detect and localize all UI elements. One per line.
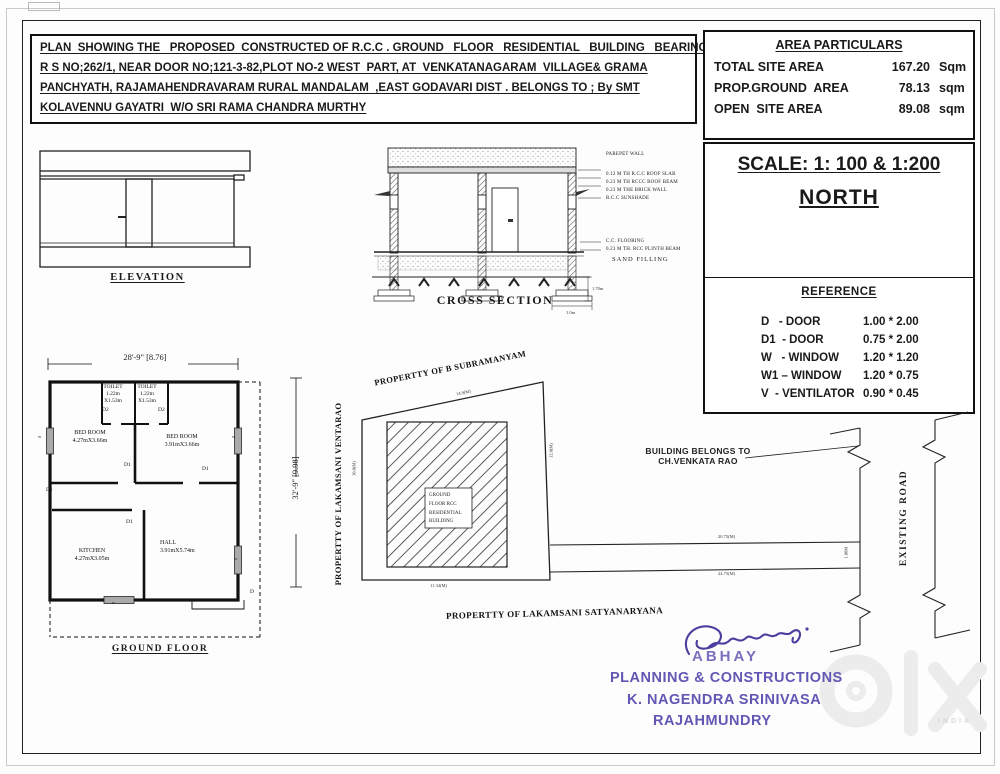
area-row-value: 78.13	[865, 81, 930, 95]
door-mark-d1: D1	[126, 519, 133, 525]
area-particulars-box: AREA PARTICULARS TOTAL SITE AREA 167.20 …	[703, 30, 975, 140]
property-label-left: PROPERTTY OF LAKAMSANI VENTARAO	[333, 389, 343, 599]
door-mark-d1: D1	[46, 487, 53, 493]
north-text: NORTH	[705, 186, 973, 210]
callout-sunshade: R.C.C SUNSHADE	[606, 196, 649, 201]
area-row-unit: Sqm	[939, 60, 966, 74]
reference-size: 1.20 * 0.75	[863, 370, 919, 382]
room-name: KITCHEN	[79, 548, 105, 554]
area-row-label: PROP.GROUND AREA	[714, 81, 849, 95]
window-mark-w: w	[232, 434, 235, 439]
room-name: BED ROOM	[74, 430, 106, 436]
scale-reference-box: SCALE: 1: 100 & 1:200 NORTH REFERENCE D …	[703, 142, 975, 414]
title-block: PLAN SHOWING THE PROPOSED CONSTRUCTED OF…	[30, 34, 697, 124]
building-box-line: BUILDING	[429, 519, 453, 524]
callout-roof-beam: 0.23 M TH RCCC ROOF BEAM	[606, 180, 678, 185]
section-footing-dim: 1.0m	[566, 310, 575, 315]
scale-text: SCALE: 1: 100 & 1:200	[705, 154, 973, 176]
room-name: TOILET	[103, 384, 122, 390]
belongs-line-1: BUILDING BELONGS TO	[645, 446, 750, 456]
reference-name: D - DOOR	[761, 316, 820, 328]
room-hall: HALL 3.91mX5.74m	[160, 540, 220, 555]
site-dim-left: 10.0(M)	[352, 454, 357, 484]
reference-name: W - WINDOW	[761, 352, 839, 364]
callout-brick-wall: 0.23 M THE BRICK WALL	[606, 188, 667, 193]
title-line-1: PLAN SHOWING THE PROPOSED CONSTRUCTED OF…	[40, 42, 707, 54]
lane-dim: 1.00M	[843, 547, 848, 559]
reference-size: 1.20 * 1.20	[863, 352, 919, 364]
belongs-line-2: CH.VENKATA RAO	[658, 456, 738, 466]
elevation-drawing	[36, 145, 258, 271]
reference-size: 0.90 * 0.45	[863, 388, 919, 400]
blueprint-sheet: PLAN SHOWING THE PROPOSED CONSTRUCTED OF…	[0, 0, 1000, 774]
elevation-label: ELEVATION	[100, 272, 195, 283]
stamp-line-city: RAJAHMUNDRY	[653, 713, 772, 729]
callout-roof-slab: 0.12 M TH R.C.C ROOF SLAB	[606, 172, 676, 177]
door-mark-d1: D1	[124, 462, 131, 468]
reference-name: V - VENTILATOR	[761, 388, 855, 400]
room-dim: 4.27mX3.05m	[75, 556, 110, 562]
window-mark-w: w	[112, 600, 115, 605]
window-mark-w: w	[234, 556, 237, 561]
stamp-line-name: K. NAGENDRA SRINIVASA	[627, 692, 821, 708]
building-box-line: GROUND	[429, 493, 450, 498]
room-toilet-left: TOILET 1.22m X1.53m	[98, 384, 128, 405]
callout-flooring: C.C. FLOORING	[606, 239, 644, 244]
area-row-label: TOTAL SITE AREA	[714, 60, 824, 74]
cross-section-drawing	[372, 140, 604, 318]
room-name: HALL	[160, 540, 176, 546]
reference-name: D1 - DOOR	[761, 334, 824, 346]
plan-height-dim: 32'-9" [9.98]	[290, 433, 300, 523]
area-row-unit: sqm	[939, 102, 965, 116]
site-dim-bottom: 11.34(M)	[430, 583, 447, 588]
existing-road-label: EXISTING ROAD	[899, 462, 909, 574]
callout-sand-filling: SAND FILLING	[612, 256, 669, 263]
cross-section-label: CROSS SECTION	[420, 293, 570, 308]
room-bed-left: BED ROOM 4.27mX3.66m	[58, 430, 122, 445]
reference-name: W1 – WINDOW	[761, 370, 842, 382]
floor-plan-drawing	[40, 352, 330, 652]
room-kitchen: KITCHEN 4.27mX3.05m	[62, 548, 122, 563]
title-line-3: PANCHYATH, RAJAMAHENDRAVARAM RURAL MANDA…	[40, 82, 640, 94]
room-name: BED ROOM	[166, 434, 198, 440]
title-line-4: KOLAVENNU GAYATRI W/O SRI RAMA CHANDRA M…	[40, 102, 366, 114]
room-dim: 3.91mX3.66m	[165, 442, 200, 448]
building-belongs-note: BUILDING BELONGS TO CH.VENKATA RAO	[628, 446, 768, 466]
room-name: TOILET	[137, 384, 156, 390]
reference-size: 1.00 * 2.00	[863, 316, 919, 328]
building-box-line: RESIDENTIAL	[429, 511, 462, 516]
passage-dim-bottom: 24.75(M)	[718, 571, 735, 576]
corner-tab	[28, 2, 60, 11]
room-dim: 4.27mX3.66m	[73, 438, 108, 444]
area-row-value: 89.08	[865, 102, 930, 116]
callout-plinth-beam: 0.23 M TH. RCC PLINTH BEAM	[606, 247, 681, 252]
area-row-label: OPEN SITE AREA	[714, 102, 823, 116]
area-particulars-title: AREA PARTICULARS	[705, 38, 973, 52]
door-mark-d2: D2	[102, 407, 109, 413]
door-mark-d1: D1	[202, 466, 209, 472]
olx-watermark	[808, 645, 998, 745]
section-depth-dim: 1.70m	[592, 286, 603, 291]
door-mark-d2: D2	[158, 407, 165, 413]
ground-floor-label: GROUND FLOOR	[100, 644, 220, 654]
room-dim: X1.53m	[104, 398, 122, 404]
room-dim: 3.91mX5.74m	[160, 548, 195, 554]
callout-parapet: PAREPET WALL	[606, 152, 645, 157]
olx-india-label: INDIA	[938, 718, 972, 725]
area-row-value: 167.20	[865, 60, 930, 74]
signature	[675, 618, 825, 673]
area-row-unit: sqm	[939, 81, 965, 95]
passage-dim-top: 20.75(M)	[718, 534, 735, 539]
building-box-line: FLOOR RCC	[429, 502, 457, 507]
building-box-text: GROUND FLOOR RCC RESIDENTIAL BUILDING	[429, 492, 472, 527]
title-line-2: R S NO;262/1, NEAR DOOR NO;121-3-82,PLOT…	[40, 62, 648, 74]
reference-size: 0.75 * 2.00	[863, 334, 919, 346]
room-dim: X1.53m	[138, 398, 156, 404]
window-mark-w: w	[38, 434, 41, 439]
room-dim: 1.22m	[140, 391, 154, 397]
reference-title: REFERENCE	[705, 286, 973, 298]
plan-width-dim: 28'-9" [8.76]	[80, 352, 210, 362]
divider-line	[705, 277, 973, 278]
door-mark-d: D	[250, 589, 254, 595]
room-toilet-right: TOILET 1.22m X1.53m	[132, 384, 162, 405]
room-dim: 1.22m	[106, 391, 120, 397]
room-bed-right: BED ROOM 3.91mX3.66m	[150, 434, 214, 449]
